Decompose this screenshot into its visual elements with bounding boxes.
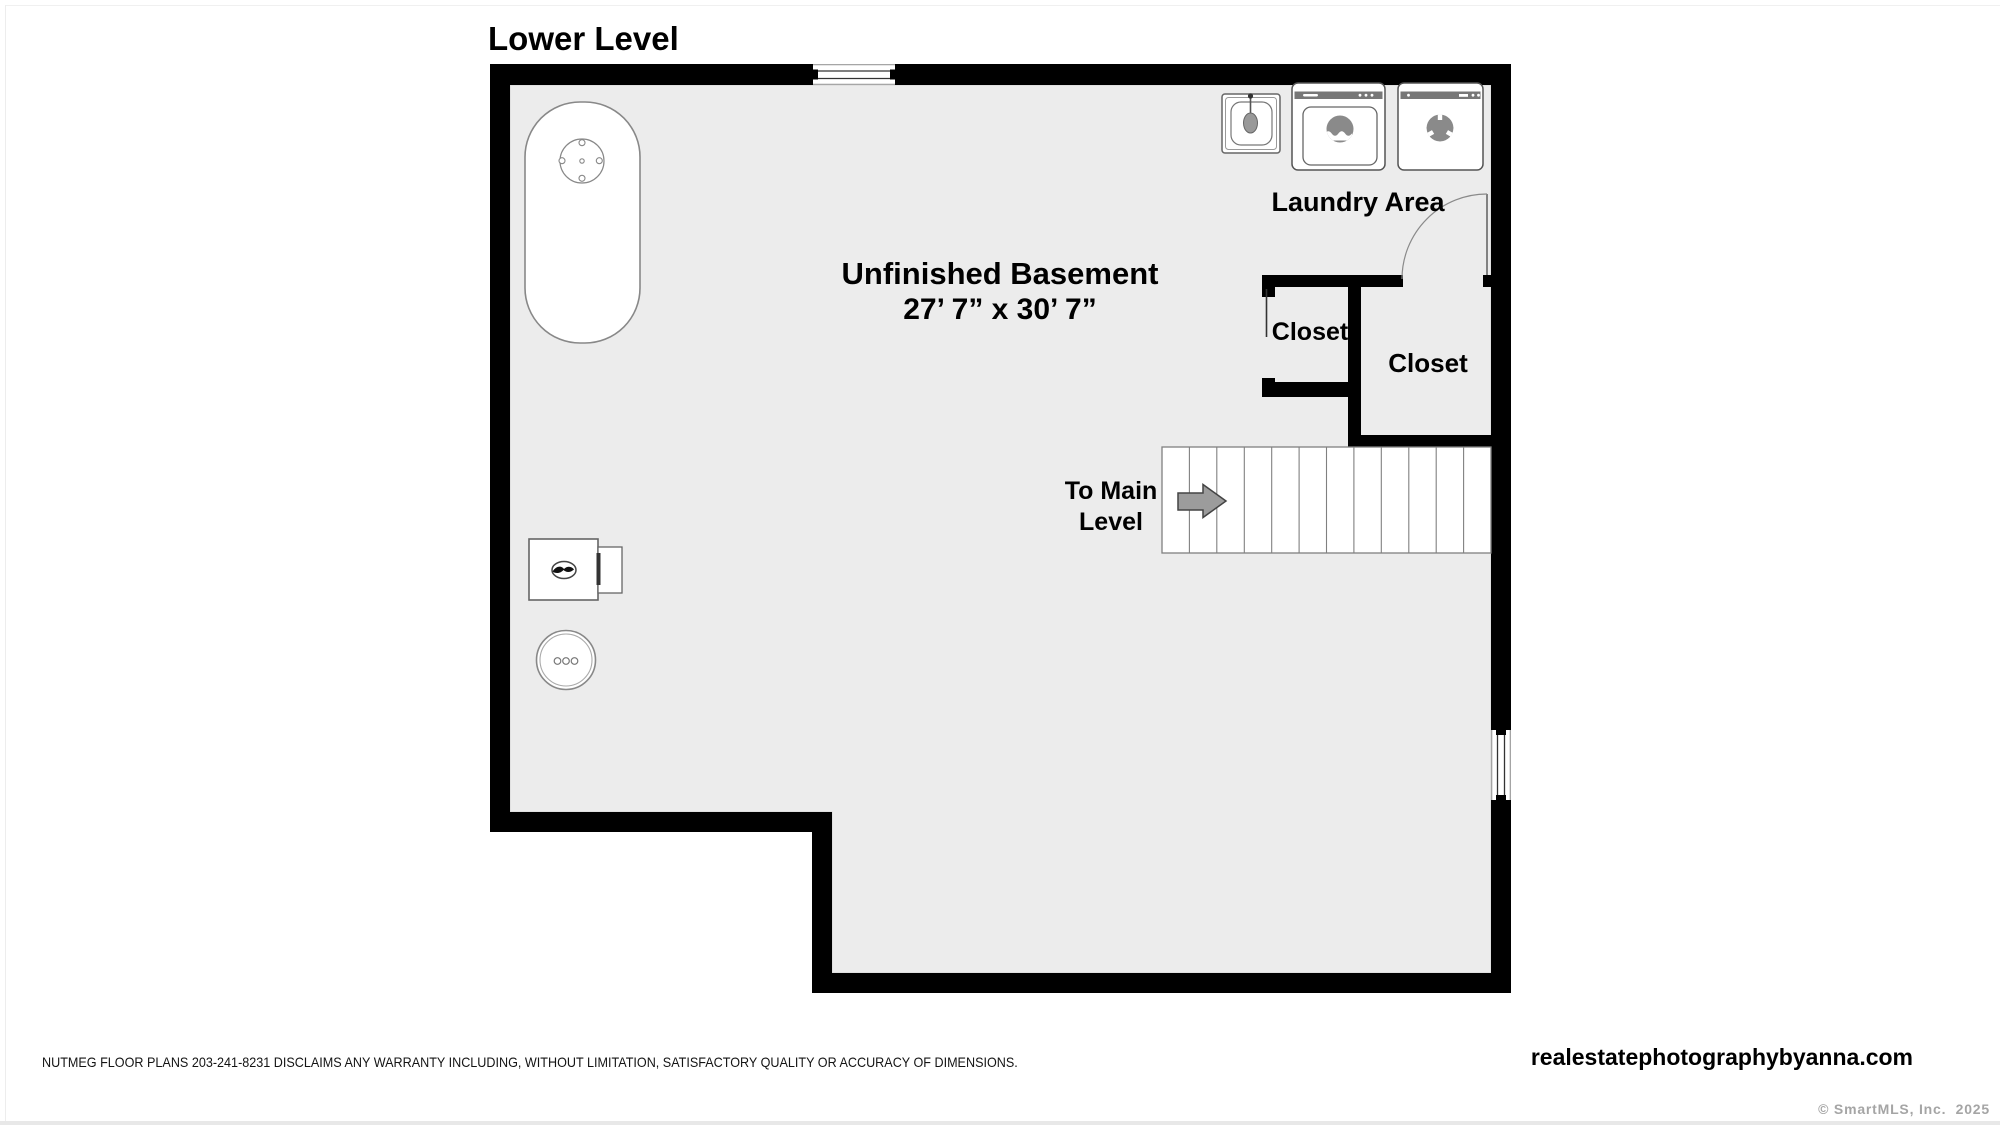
stairs-label: To Main Level bbox=[1031, 476, 1191, 538]
sink-icon bbox=[1222, 93, 1280, 153]
window-top bbox=[813, 64, 895, 85]
stairs bbox=[1162, 447, 1491, 553]
closet-right-label: Closet bbox=[1356, 348, 1500, 379]
oil-tank-icon bbox=[537, 631, 596, 690]
page-title: Lower Level bbox=[488, 20, 679, 58]
room-name: Unfinished Basement bbox=[780, 256, 1220, 292]
floorplan-drawing bbox=[0, 0, 2000, 1125]
stairs-label-line2: Level bbox=[1031, 507, 1191, 538]
water-heater-icon bbox=[525, 102, 640, 343]
stairs-label-line1: To Main bbox=[1031, 476, 1191, 507]
furnace-icon bbox=[529, 539, 622, 600]
room-label: Unfinished Basement 27’ 7” x 30’ 7” bbox=[780, 256, 1220, 328]
website-text: realestatephotographybyanna.com bbox=[1531, 1044, 1913, 1071]
laundry-area-label: Laundry Area bbox=[1237, 187, 1479, 218]
disclaimer-text: NUTMEG FLOOR PLANS 203-241-8231 DISCLAIM… bbox=[42, 1054, 1018, 1070]
window-right bbox=[1491, 730, 1511, 800]
washer-icon bbox=[1292, 83, 1385, 170]
closet-left-label: Closet bbox=[1252, 318, 1368, 347]
room-dimensions: 27’ 7” x 30’ 7” bbox=[780, 292, 1220, 328]
dryer-icon bbox=[1398, 83, 1483, 170]
copyright-text: © SmartMLS, Inc. 2025 bbox=[1818, 1101, 1990, 1117]
